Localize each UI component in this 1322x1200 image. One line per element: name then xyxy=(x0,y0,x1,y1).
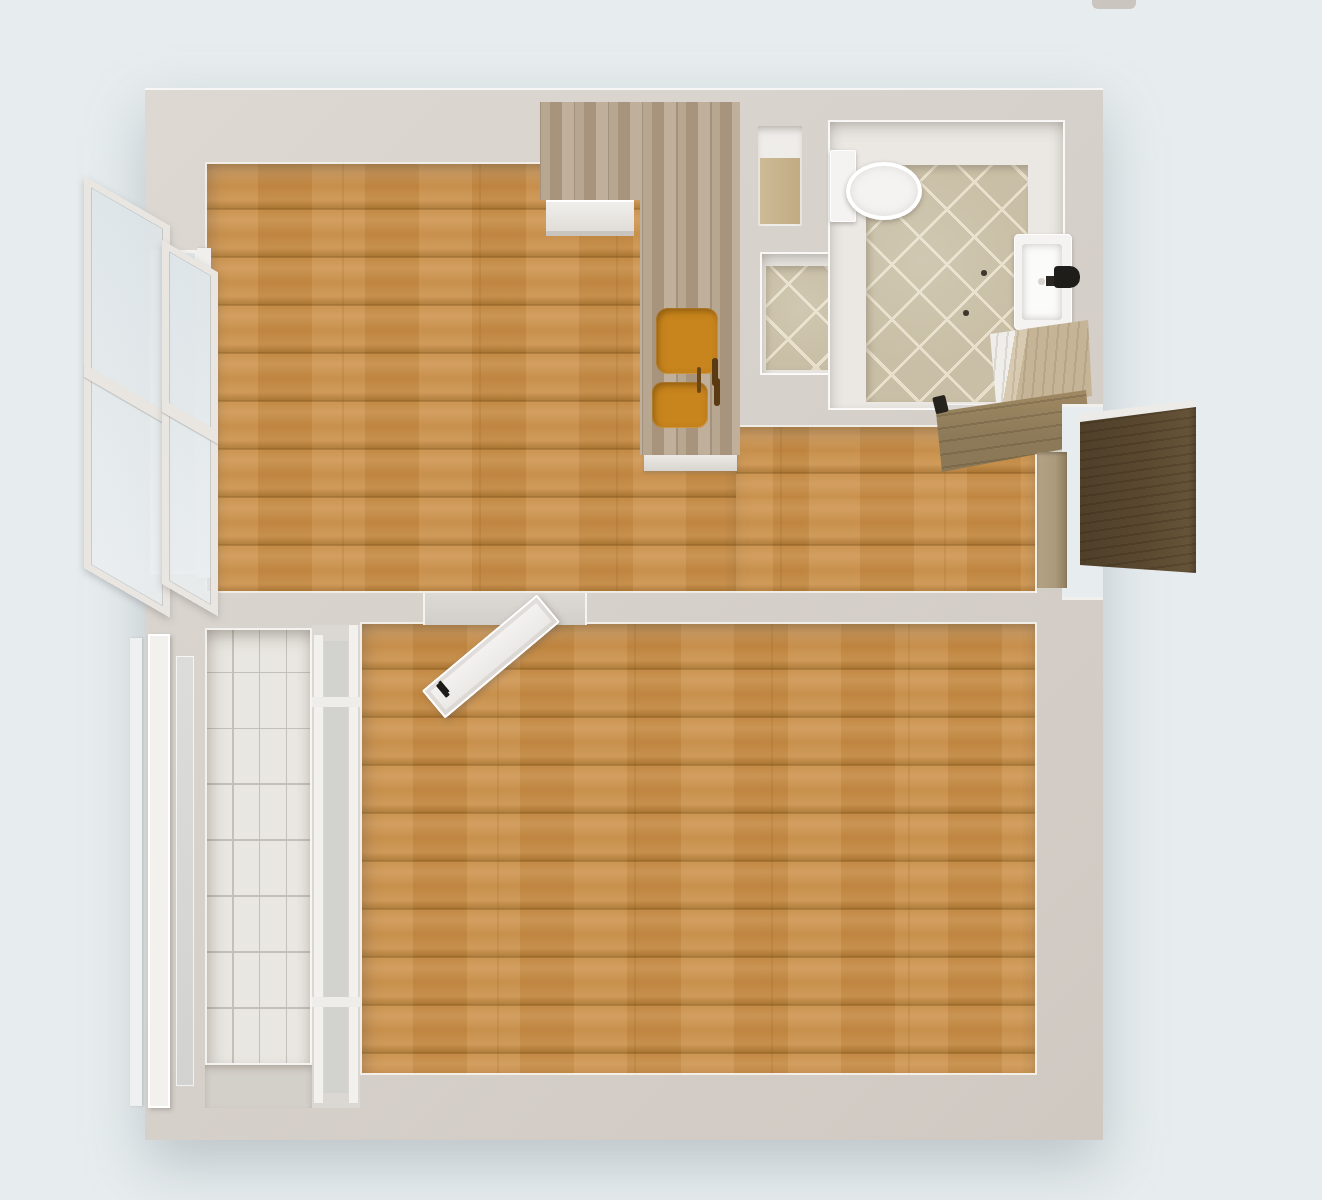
window-sash-outer xyxy=(84,176,170,618)
cabinet-knob xyxy=(981,270,987,276)
kitchen-sink-bowl-2 xyxy=(652,382,708,428)
balcony-glazing xyxy=(130,634,204,1110)
stove-front xyxy=(546,200,634,236)
window-sash-rail xyxy=(162,399,218,444)
kitchen-faucet xyxy=(712,358,718,386)
closet-niche-floor xyxy=(760,158,800,224)
bathroom-faucet xyxy=(1054,266,1080,288)
balcony-divider xyxy=(312,625,360,1108)
entry-door xyxy=(1078,398,1198,578)
divider-glass xyxy=(324,641,348,1093)
entry-threshold xyxy=(1037,452,1067,588)
divider-mullion-top xyxy=(312,697,360,707)
floor-plan-render: { "scene": { "type": "3d-floor-plan-top-… xyxy=(0,0,1322,1200)
bathroom-sink-drain xyxy=(1038,278,1045,285)
window-sash-rail xyxy=(84,364,170,427)
cabinet-knob xyxy=(963,310,969,316)
counter-cabinet-front xyxy=(644,455,737,471)
balcony-glazing-outer-frame xyxy=(130,638,142,1106)
window-sash-inner xyxy=(162,240,218,616)
kitchen-sink-bowl-1 xyxy=(656,308,718,374)
bathroom xyxy=(828,120,1065,410)
balcony-glazing-frame xyxy=(148,634,170,1108)
interior-door-handle xyxy=(436,682,450,697)
divider-mullion-bottom xyxy=(312,997,360,1007)
balcony-concrete-floor xyxy=(205,1065,312,1108)
balcony-tile-floor xyxy=(205,628,312,1065)
balcony-glazing-glass xyxy=(176,656,194,1086)
top-clipped-object xyxy=(1092,0,1136,9)
toilet-bowl xyxy=(846,162,922,220)
closet-niche xyxy=(758,126,802,226)
